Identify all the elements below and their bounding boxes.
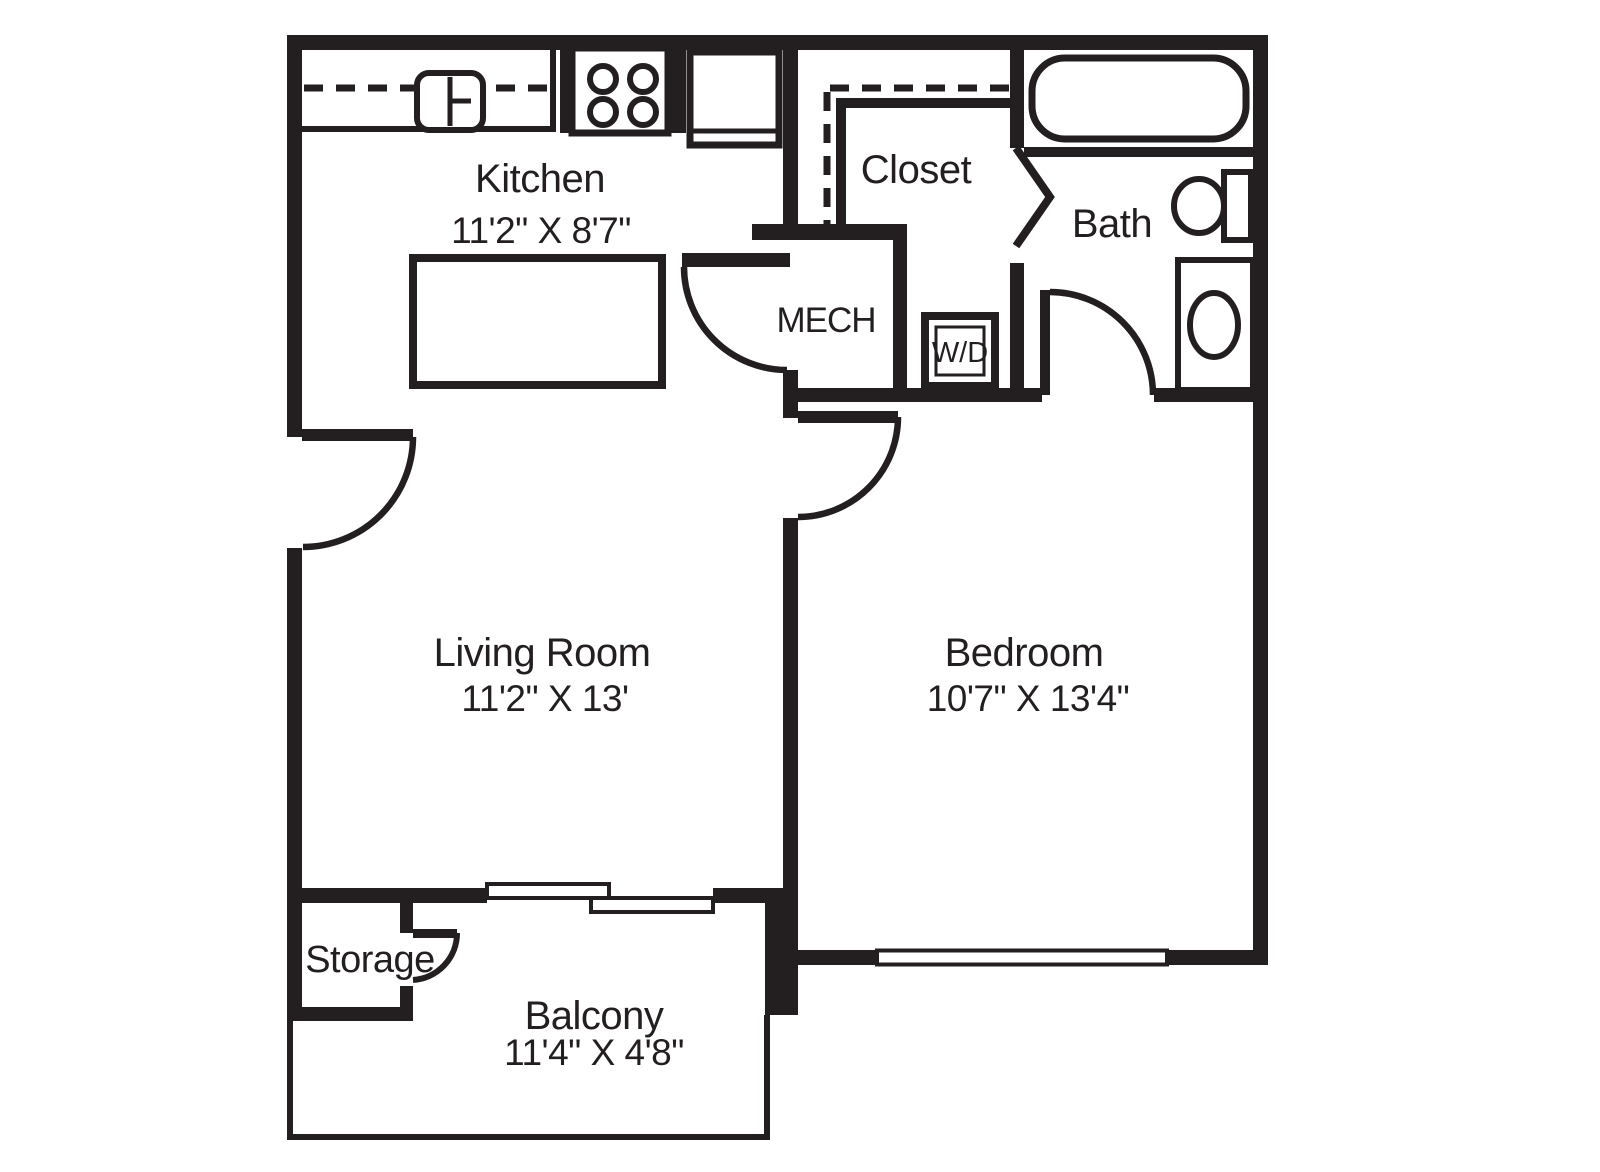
wall-living-south-east bbox=[713, 888, 798, 903]
burner bbox=[590, 66, 616, 92]
closet-bifold-door bbox=[1016, 148, 1050, 246]
mech-door-swing bbox=[684, 267, 787, 370]
wall-left-lower bbox=[287, 548, 302, 1021]
living-room-label: Living Room bbox=[434, 631, 651, 675]
living-room-dimensions: 11'2" X 13' bbox=[461, 678, 628, 719]
kitchen-label: Kitchen bbox=[475, 157, 605, 201]
bath-door bbox=[1040, 290, 1153, 395]
storage-door-leaf bbox=[413, 929, 457, 938]
wall-spine-upper bbox=[783, 50, 798, 240]
stove bbox=[572, 48, 668, 133]
wall-storage-south bbox=[287, 1007, 413, 1021]
wall-pillar bbox=[765, 888, 798, 1015]
toilet bbox=[1174, 172, 1251, 240]
bedroom-door-swing bbox=[798, 417, 898, 517]
wall-hall-south-west bbox=[783, 388, 1042, 402]
wall-right bbox=[1253, 35, 1268, 965]
slider-panel-left bbox=[487, 884, 609, 898]
wall-closet-bath-lower bbox=[1010, 263, 1024, 402]
bathtub bbox=[1032, 58, 1246, 139]
closet-shelf-top bbox=[836, 98, 1013, 108]
wall-below-tub bbox=[1024, 147, 1253, 157]
wall-mech-east bbox=[893, 240, 907, 402]
bath-label: Bath bbox=[1072, 202, 1152, 246]
mech-door-leaf bbox=[682, 253, 790, 267]
mech-door bbox=[682, 253, 790, 370]
wall-storage-east-upper bbox=[400, 893, 413, 933]
balcony-rail-bottom bbox=[287, 1134, 770, 1140]
kitchen-dimensions: 11'2" X 8'7" bbox=[451, 210, 631, 251]
burner bbox=[590, 99, 616, 125]
wall-left-upper bbox=[287, 35, 302, 437]
burner bbox=[630, 66, 656, 92]
washer-dryer-label: W/D bbox=[932, 337, 988, 369]
wall-top bbox=[287, 35, 1268, 50]
counter-right-edge bbox=[550, 50, 556, 132]
kitchen-sink bbox=[417, 73, 483, 130]
floor-plan: Kitchen 11'2" X 8'7" Closet Bath MECH W/… bbox=[0, 0, 1600, 1172]
bath-door-leaf bbox=[1040, 290, 1050, 395]
closet-shelf-left bbox=[836, 98, 846, 226]
sliding-glass-door bbox=[487, 884, 713, 912]
burner bbox=[630, 99, 656, 125]
toilet-tank bbox=[1224, 172, 1251, 240]
wall-spine-lower bbox=[783, 518, 798, 903]
balcony-rail-right bbox=[764, 1015, 770, 1140]
entry-door-swing bbox=[303, 437, 413, 547]
storage-label: Storage bbox=[305, 939, 435, 981]
mech-label: MECH bbox=[776, 301, 875, 340]
balcony-dimensions: 11'4" X 4'8" bbox=[504, 1032, 684, 1073]
wall-living-south-west bbox=[287, 888, 487, 903]
vanity-sink bbox=[1178, 260, 1253, 390]
vanity-basin bbox=[1190, 293, 1238, 357]
bedroom-door bbox=[798, 411, 898, 517]
slider-panel-right bbox=[591, 898, 713, 912]
bedroom-label: Bedroom bbox=[945, 631, 1104, 675]
bedroom-door-leaf bbox=[798, 411, 898, 423]
entry-door-leaf bbox=[302, 429, 413, 441]
refrigerator bbox=[690, 52, 779, 145]
entry-door bbox=[302, 429, 413, 547]
bedroom-window bbox=[877, 951, 1167, 965]
bedroom-dimensions: 10'7" X 13'4" bbox=[927, 678, 1130, 719]
floor-plan-page: Kitchen 11'2" X 8'7" Closet Bath MECH W/… bbox=[0, 0, 1600, 1172]
bath-door-swing bbox=[1050, 292, 1153, 395]
kitchen-island bbox=[413, 258, 662, 385]
balcony-rail-left bbox=[287, 1021, 293, 1140]
closet-label: Closet bbox=[861, 148, 972, 192]
toilet-bowl bbox=[1174, 179, 1224, 233]
